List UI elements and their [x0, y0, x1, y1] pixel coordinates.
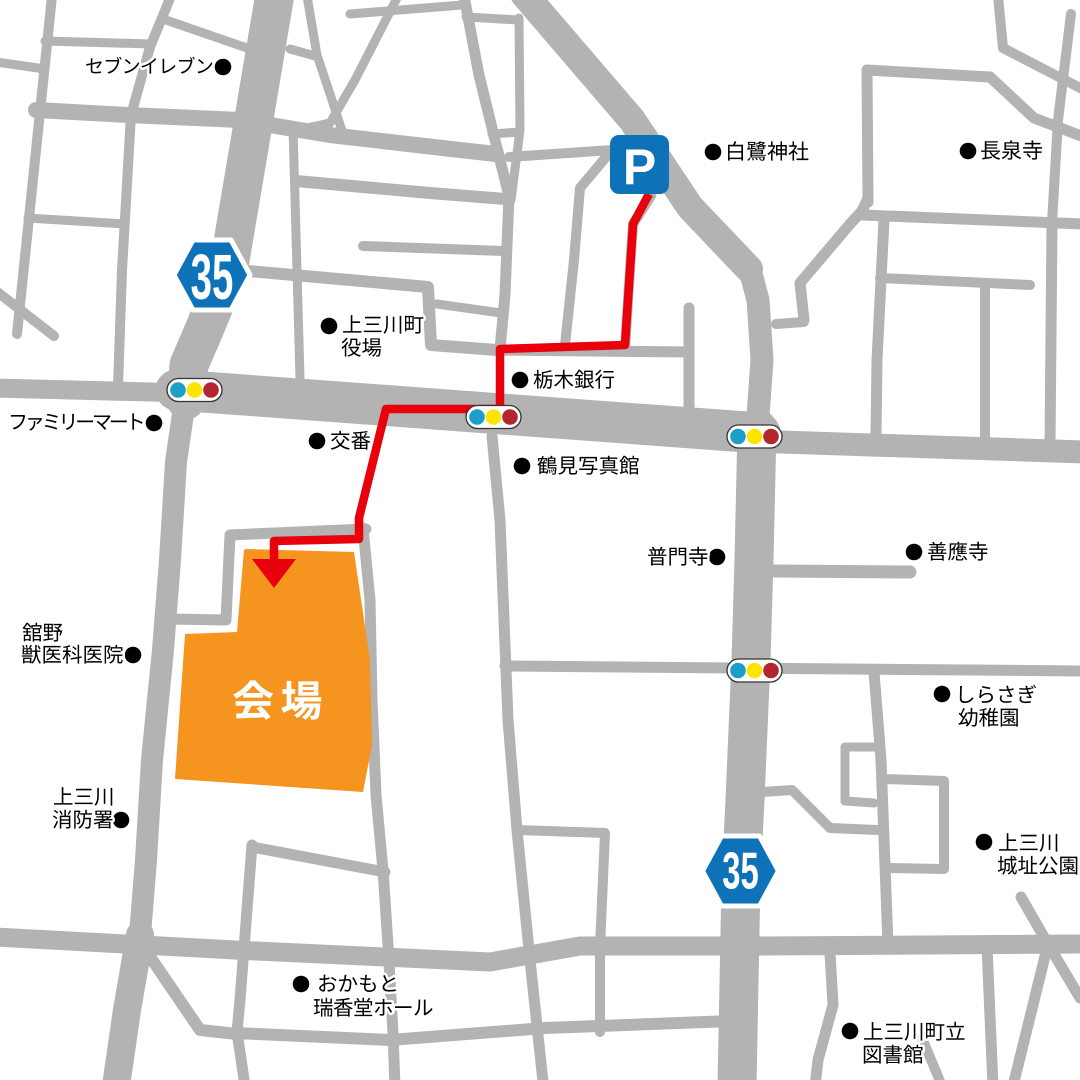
svg-text:P: P: [623, 139, 656, 195]
svg-text:35: 35: [191, 242, 234, 314]
svg-text:35: 35: [722, 843, 758, 900]
